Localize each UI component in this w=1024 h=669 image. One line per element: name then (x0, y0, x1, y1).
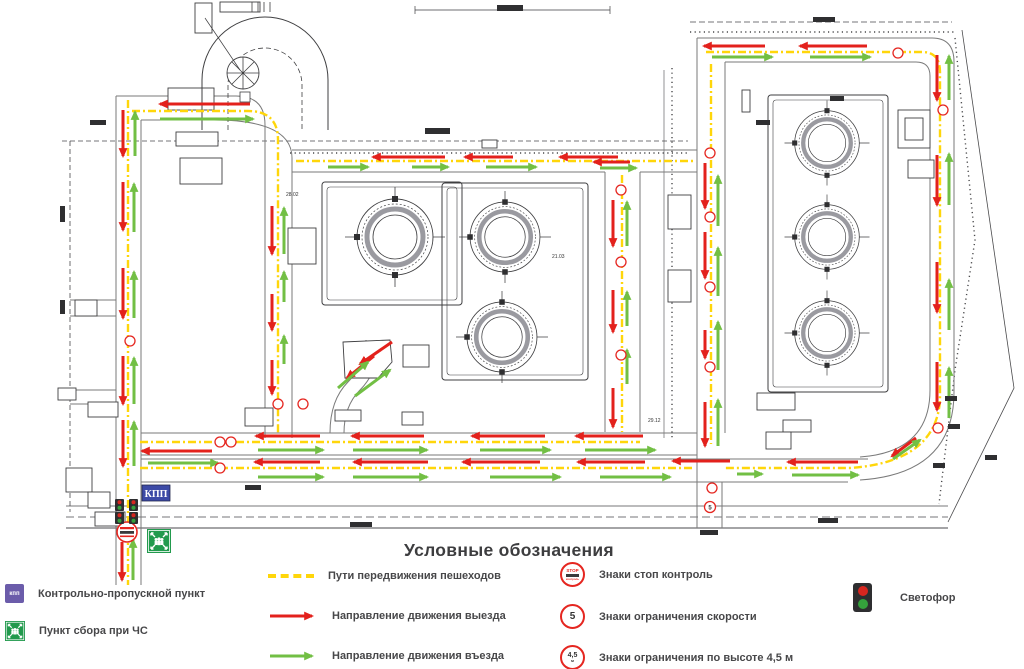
kpp-checkpoint-box: КПП (142, 485, 170, 501)
legend-item-checkpoint: кпп Контрольно-пропускной пункт (5, 584, 205, 603)
legend-item-entry: Направление движения въезда (268, 650, 504, 662)
horseshoe-road (202, 2, 328, 130)
exit-arrow-symbol (268, 610, 318, 622)
pedestrian-label: Пути передвижения пешеходов (328, 570, 501, 582)
stop-control-sign (117, 522, 137, 542)
storage-tanks (345, 101, 870, 384)
svg-text:28.02: 28.02 (286, 192, 299, 198)
checkpoint-label: Контрольно-пропускной пункт (38, 588, 205, 600)
checkpoint-traffic-lights (115, 499, 138, 524)
exit-label: Направление движения выезда (332, 610, 506, 622)
traffic-scheme-page: 5 КПП 28.02 21.03 29.12 Условные обознач… (0, 0, 1024, 669)
svg-text:21.03: 21.03 (552, 254, 565, 260)
site-plan: 5 КПП 28.02 21.03 29.12 (0, 0, 1024, 669)
assembly-point-legend-icon (5, 621, 25, 641)
stop-control-sign-icon: STOP контроль (560, 562, 585, 587)
legend-item-pedestrian: Пути передвижения пешеходов (268, 570, 501, 582)
legend-item-traffic-light: Светофор (853, 583, 955, 612)
height-sign-label: Знаки ограничения по высоте 4,5 м (599, 652, 793, 664)
pedestrian-path-symbol (268, 574, 314, 578)
assembly-point-icon (147, 529, 171, 553)
svg-text:29.12: 29.12 (648, 418, 661, 424)
traffic-light-label: Светофор (900, 592, 955, 604)
entry-arrow-symbol (268, 650, 318, 662)
height-limit-sign-icon: 4,5 м (560, 645, 585, 669)
kpp-badge-icon: кпп (5, 584, 24, 603)
entry-label: Направление движения въезда (332, 650, 504, 662)
traffic-light-icon (853, 583, 872, 612)
assembly-label: Пункт сбора при ЧС (39, 625, 148, 637)
legend-title: Условные обозначения (404, 540, 614, 561)
stop-sign-label: Знаки стоп контроль (599, 569, 713, 581)
legend-item-height-sign: 4,5 м Знаки ограничения по высоте 4,5 м (560, 645, 793, 669)
svg-text:КПП: КПП (145, 489, 168, 500)
legend-item-assembly: Пункт сбора при ЧС (5, 621, 148, 641)
legend-item-speed-sign: 5 Знаки ограничения скорости (560, 604, 757, 629)
speed-sign-label: Знаки ограничения скорости (599, 611, 757, 623)
speed-limit-sign-icon: 5 (560, 604, 585, 629)
legend-item-exit: Направление движения выезда (268, 610, 506, 622)
legend-item-stop-sign: STOP контроль Знаки стоп контроль (560, 562, 713, 587)
